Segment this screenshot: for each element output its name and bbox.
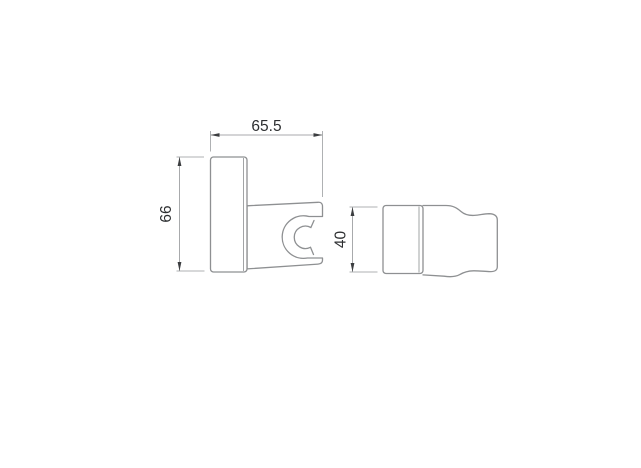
side-view-holder-body bbox=[247, 202, 323, 269]
dimension-arrow-down bbox=[178, 262, 182, 271]
side-view-wall-plate bbox=[211, 157, 248, 272]
top-view-wall-plate bbox=[383, 206, 423, 274]
dimension-arrow-down bbox=[351, 263, 355, 272]
shower-holder-technical-drawing: 65.5 66 bbox=[0, 0, 641, 468]
dimension-arrow-up bbox=[351, 207, 355, 216]
dimension-arrow-right bbox=[314, 133, 323, 137]
side-view-height-dimension: 66 bbox=[158, 157, 205, 271]
technical-drawing-page: 65.5 66 bbox=[0, 0, 641, 468]
side-view: 65.5 66 bbox=[158, 118, 323, 272]
side-view-clamp-inner-arc bbox=[294, 221, 314, 255]
height-dimension-label: 66 bbox=[158, 205, 175, 222]
top-view-holder-body bbox=[423, 206, 497, 277]
dimension-arrow-left bbox=[211, 133, 220, 137]
top-view: 40 bbox=[333, 206, 498, 277]
width-dimension-label: 65.5 bbox=[251, 118, 281, 135]
dimension-arrow-up bbox=[178, 157, 182, 166]
height-dimension-label: 40 bbox=[333, 231, 350, 249]
top-view-height-dimension: 40 bbox=[333, 207, 378, 272]
